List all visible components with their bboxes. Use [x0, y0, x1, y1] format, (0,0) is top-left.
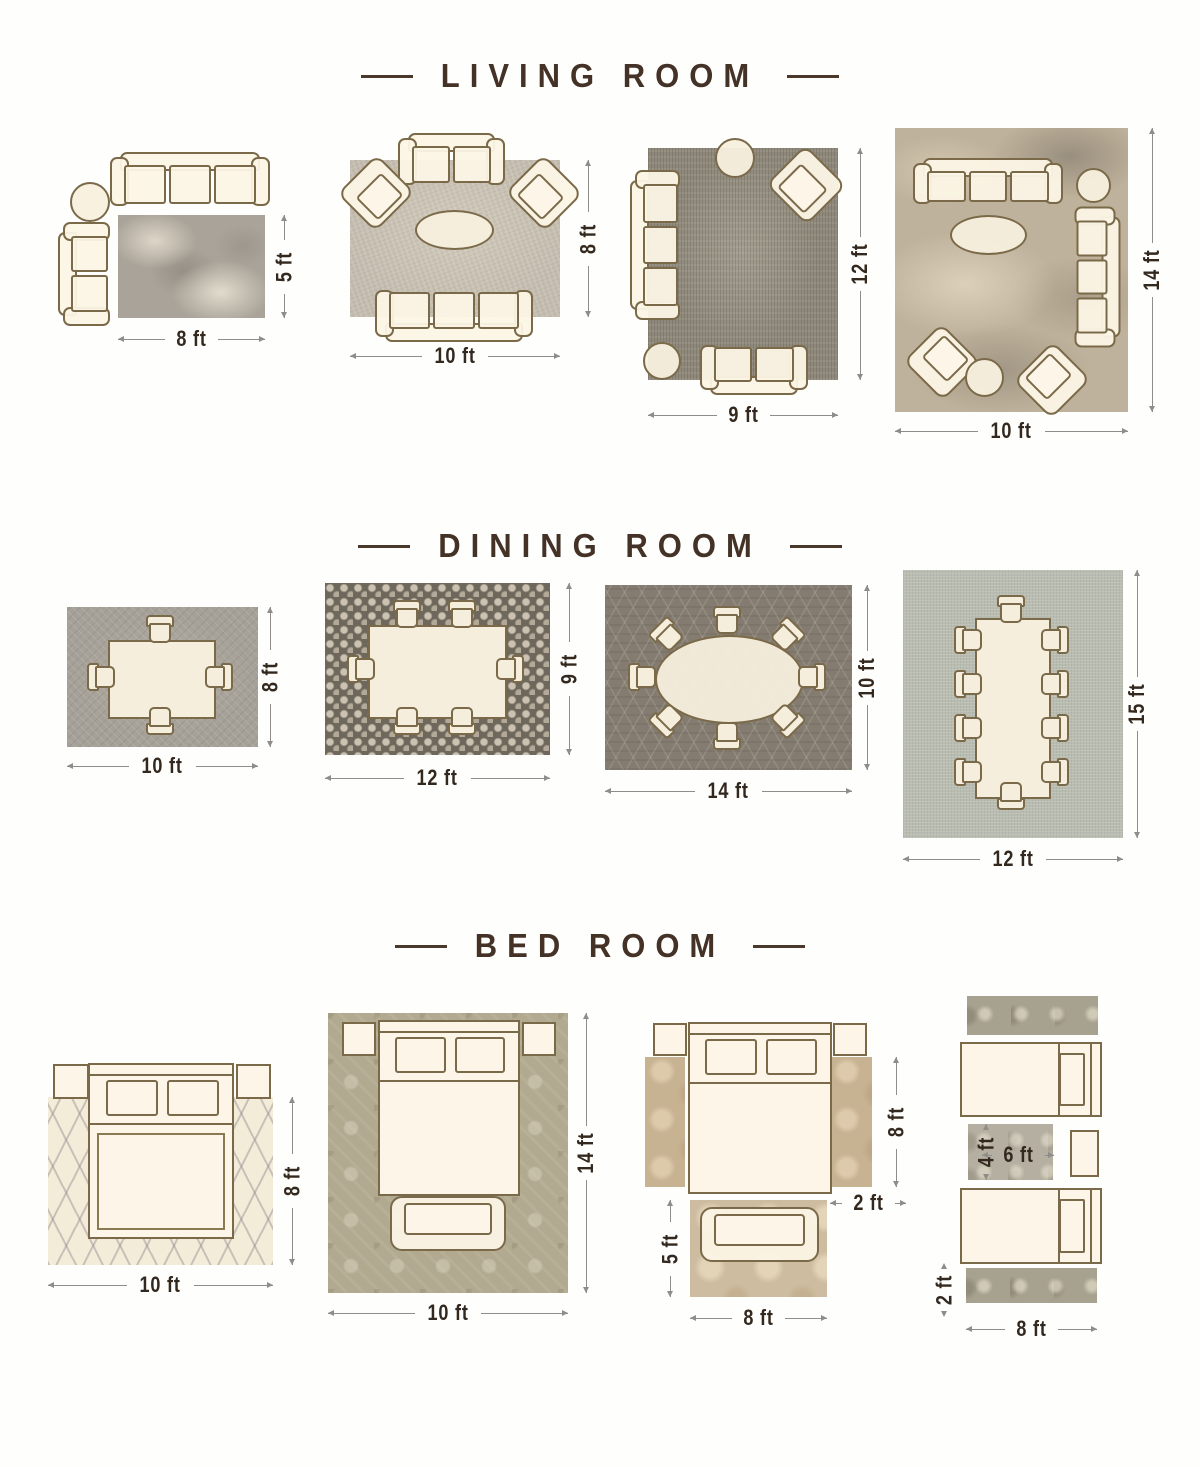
dim-line: [896, 1149, 897, 1187]
dim-line: [867, 705, 868, 771]
pillow: [1059, 1199, 1085, 1252]
dim-line: [325, 778, 404, 779]
bed: [688, 1022, 832, 1194]
dim-line: [1152, 128, 1153, 243]
dining-chair: [798, 662, 826, 692]
dim-line: [284, 294, 285, 319]
dim-line: [895, 1203, 907, 1204]
dim-line: [586, 1013, 587, 1126]
bench: [700, 1207, 819, 1262]
dining-layout-12x9: 9 ft 12 ft: [310, 570, 600, 800]
dimension-label: 12 ft: [410, 765, 464, 791]
living-layout-8x5: 5 ft 8 ft: [40, 140, 320, 370]
twin-bed: [960, 1042, 1102, 1117]
foot-rug-width-dimension: 8 ft: [690, 1305, 827, 1331]
nightstand: [342, 1022, 376, 1056]
height-dimension: 8 ft: [256, 607, 284, 747]
pillow: [106, 1080, 158, 1116]
height-dimension: 10 ft: [853, 585, 881, 770]
dining-chair: [1041, 757, 1069, 787]
dim-line: [670, 1276, 671, 1298]
title-dash: [790, 545, 842, 548]
width-dimension: 10 ft: [895, 418, 1128, 444]
between-rug-width-dimension: 6 ft: [982, 1142, 1054, 1168]
foot-rug-height-dimension: 5 ft: [656, 1200, 684, 1297]
dining-chair: [954, 625, 982, 655]
dim-line: [569, 583, 570, 642]
dining-chair: [954, 669, 982, 699]
dim-line: [903, 859, 980, 860]
twin-bed: [960, 1188, 1102, 1264]
dining-chair: [447, 600, 477, 628]
dim-line: [986, 1124, 987, 1125]
dim-line: [1137, 570, 1138, 677]
dining-chair: [996, 782, 1026, 810]
headboard: [89, 1065, 233, 1076]
bedroom-layout-twin-runners: 4 ft 6 ft 2 ft 8 ft: [920, 980, 1200, 1350]
side-table: [70, 182, 110, 222]
dimension-label: 9 ft: [556, 654, 582, 684]
bedroom-layout-10x14: 14 ft 10 ft: [310, 990, 620, 1330]
dim-line: [67, 766, 129, 767]
width-dimension: 9 ft: [648, 402, 838, 428]
dim-line: [605, 791, 695, 792]
nightstand: [53, 1064, 89, 1099]
dim-line: [196, 766, 258, 767]
dimension-label: 10 ft: [854, 657, 880, 698]
width-dimension: 12 ft: [325, 765, 550, 791]
headboard: [689, 1024, 831, 1035]
pillow: [167, 1080, 219, 1116]
dining-room-section-title: DINING ROOM: [0, 528, 1200, 564]
sheet-line: [90, 1123, 232, 1125]
dining-chair: [996, 595, 1026, 623]
dimension-label: 8 ft: [883, 1107, 909, 1137]
dining-chair: [712, 606, 742, 634]
rug-size-guide: LIVING ROOM 5 ft 8 ft: [0, 0, 1200, 1467]
dim-line: [270, 607, 271, 650]
sofa: [1075, 207, 1121, 348]
dim-line: [986, 1179, 987, 1180]
sofa-seats: [71, 236, 108, 312]
pillow: [705, 1039, 757, 1075]
dimension-label: 12 ft: [986, 846, 1040, 872]
dim-line: [1045, 1155, 1055, 1156]
dim-line: [860, 148, 861, 237]
bedroom-layout-runners: 8 ft 2 ft 5 ft 8 ft: [630, 1010, 910, 1320]
dim-line: [895, 431, 978, 432]
sofa: [110, 152, 270, 206]
height-dimension: 8 ft: [278, 1097, 306, 1265]
sofa-seats: [927, 171, 1049, 202]
runner-length-dimension: 8 ft: [966, 1316, 1097, 1342]
dimension-label: 5 ft: [271, 251, 297, 281]
dining-chair: [1041, 625, 1069, 655]
dining-chair: [145, 615, 175, 643]
dim-line: [350, 356, 422, 357]
height-dimension: 8 ft: [574, 160, 602, 317]
sofa: [375, 290, 533, 342]
dim-line: [586, 1180, 587, 1293]
blanket: [97, 1133, 225, 1230]
runner-rug: [967, 996, 1098, 1035]
dim-line: [284, 215, 285, 240]
width-dimension: 10 ft: [67, 753, 258, 779]
nightstand: [522, 1022, 556, 1056]
loveseat: [700, 345, 808, 395]
dimension-label: 10 ft: [984, 418, 1038, 444]
dim-line: [481, 1313, 568, 1314]
section-title-text: LIVING ROOM: [441, 57, 759, 96]
nightstand: [1070, 1130, 1099, 1177]
dim-line: [770, 415, 839, 416]
dining-table: [368, 625, 507, 719]
dim-line: [194, 1285, 273, 1286]
dimension-label: 2 ft: [931, 1275, 957, 1305]
dining-chair: [496, 654, 524, 684]
dimension-label: 15 ft: [1124, 683, 1150, 724]
dining-chair: [712, 722, 742, 750]
living-layout-10x8: 8 ft 10 ft: [330, 120, 610, 380]
sofa: [630, 170, 680, 320]
coffee-table: [415, 210, 494, 250]
dining-chair: [1041, 713, 1069, 743]
dim-line: [860, 291, 861, 380]
bed: [378, 1020, 520, 1196]
dimension-label: 10 ft: [135, 753, 189, 779]
sofa-seats: [643, 184, 678, 306]
dimension-label: 9 ft: [721, 402, 764, 428]
living-layout-10x14: 14 ft 10 ft: [880, 110, 1180, 450]
bedroom-layout-10x8: 8 ft 10 ft: [30, 1050, 320, 1320]
width-dimension: 10 ft: [328, 1300, 568, 1326]
dining-layout-10x8: 8 ft 10 ft: [40, 590, 320, 790]
dining-chair: [392, 707, 422, 735]
dining-layout-14x10: 10 ft 14 ft: [595, 570, 895, 810]
sofa-seats: [412, 146, 491, 183]
runner-width-dimension: 2 ft: [930, 1263, 958, 1309]
headboard: [1090, 1042, 1102, 1117]
dimension-label: 8 ft: [279, 1166, 305, 1196]
dining-table: [975, 618, 1051, 799]
sofa: [913, 158, 1063, 204]
width-dimension: 10 ft: [350, 343, 560, 369]
dim-line: [1137, 731, 1138, 838]
dimension-label: 10 ft: [133, 1272, 187, 1298]
dining-chair: [954, 757, 982, 787]
title-dash: [361, 75, 413, 78]
dim-line: [588, 160, 589, 212]
title-dash: [358, 545, 410, 548]
nightstand: [833, 1023, 867, 1056]
dining-chair: [347, 654, 375, 684]
title-dash: [753, 945, 805, 948]
dining-chair: [628, 662, 656, 692]
pillow: [1059, 1053, 1085, 1106]
side-table: [643, 342, 681, 380]
nightstand: [236, 1064, 271, 1099]
bed-room-section-title: BED ROOM: [0, 928, 1200, 964]
dim-line: [270, 704, 271, 747]
dining-chair: [87, 662, 115, 692]
dim-line: [328, 1313, 415, 1314]
dimension-label: 5 ft: [657, 1233, 683, 1263]
dim-line: [762, 791, 852, 792]
dimension-label: 10 ft: [421, 1300, 475, 1326]
section-title-text: DINING ROOM: [438, 527, 762, 566]
dining-chair: [1041, 669, 1069, 699]
height-dimension: 12 ft: [846, 148, 874, 380]
bench: [390, 1196, 506, 1251]
dim-line: [648, 415, 717, 416]
nightstand: [653, 1023, 687, 1056]
dim-line: [785, 1318, 827, 1319]
sofa-seats: [714, 347, 794, 382]
side-table: [715, 138, 755, 178]
bedside-runner-rug: [830, 1057, 872, 1187]
dim-line: [292, 1208, 293, 1265]
dimension-label: 14 ft: [1139, 249, 1165, 290]
height-dimension: 9 ft: [555, 583, 583, 755]
dimension-label: 8 ft: [257, 662, 283, 692]
dimension-label: 8 ft: [575, 223, 601, 253]
width-dimension: 8 ft: [118, 326, 265, 352]
headboard: [1090, 1188, 1102, 1264]
sofa-seats: [124, 165, 256, 204]
coffee-table: [950, 215, 1027, 255]
width-dimension: 14 ft: [605, 778, 852, 804]
dimension-label: 10 ft: [428, 343, 482, 369]
dim-line: [471, 778, 550, 779]
dim-line: [1045, 431, 1128, 432]
loveseat: [58, 222, 110, 326]
width-dimension: 10 ft: [48, 1272, 273, 1298]
dim-line: [218, 339, 265, 340]
height-dimension: 15 ft: [1123, 570, 1151, 838]
height-dimension: 14 ft: [572, 1013, 600, 1293]
dim-line: [588, 266, 589, 318]
side-table: [965, 358, 1004, 397]
dining-chair: [205, 662, 233, 692]
dim-line: [830, 1203, 842, 1204]
runner-rug: [966, 1268, 1097, 1303]
sofa-seats: [389, 292, 519, 329]
bed: [88, 1063, 234, 1239]
living-room-section-title: LIVING ROOM: [0, 58, 1200, 94]
dimension-label: 8 ft: [170, 326, 213, 352]
dim-line: [966, 1329, 1005, 1330]
height-dimension: 14 ft: [1138, 128, 1166, 412]
sheet-line: [690, 1082, 830, 1084]
dining-layout-12x15: 15 ft 12 ft: [890, 560, 1170, 890]
dimension-label: 6 ft: [996, 1142, 1039, 1168]
living-layout-9x12: 12 ft 9 ft: [610, 130, 890, 430]
dimension-label: 14 ft: [573, 1132, 599, 1173]
dim-line: [1046, 859, 1123, 860]
dim-line: [670, 1200, 671, 1222]
dining-chair: [954, 713, 982, 743]
sheet-line: [380, 1080, 518, 1082]
runner-length-dimension: 8 ft: [882, 1057, 910, 1187]
dining-chair: [145, 707, 175, 735]
loveseat: [398, 133, 505, 185]
dimension-label: 2 ft: [846, 1190, 889, 1216]
dimension-label: 8 ft: [1010, 1316, 1053, 1342]
pillow: [395, 1037, 446, 1073]
dining-chair: [447, 707, 477, 735]
sofa-seats: [1077, 221, 1108, 334]
dim-line: [569, 696, 570, 755]
dim-line: [118, 339, 165, 340]
rug-8x5: [118, 215, 265, 318]
pillow: [455, 1037, 506, 1073]
height-dimension: 5 ft: [270, 215, 298, 318]
dim-line: [982, 1155, 992, 1156]
dining-chair: [392, 600, 422, 628]
dim-line: [1152, 297, 1153, 412]
dim-line: [1058, 1329, 1097, 1330]
bedside-runner-rug: [645, 1057, 685, 1187]
pillow: [766, 1039, 818, 1075]
dimension-label: 8 ft: [737, 1305, 780, 1331]
dim-line: [867, 585, 868, 651]
section-title-text: BED ROOM: [475, 927, 726, 966]
dim-line: [896, 1057, 897, 1095]
headboard: [379, 1022, 519, 1033]
dim-line: [292, 1097, 293, 1154]
dimension-label: 12 ft: [847, 243, 873, 284]
dim-line: [690, 1318, 732, 1319]
width-dimension: 12 ft: [903, 846, 1123, 872]
runner-width-dimension: 2 ft: [830, 1190, 906, 1216]
dim-line: [488, 356, 560, 357]
side-table: [1076, 168, 1111, 203]
title-dash: [395, 945, 447, 948]
title-dash: [787, 75, 839, 78]
dim-line: [48, 1285, 127, 1286]
dimension-label: 14 ft: [701, 778, 755, 804]
